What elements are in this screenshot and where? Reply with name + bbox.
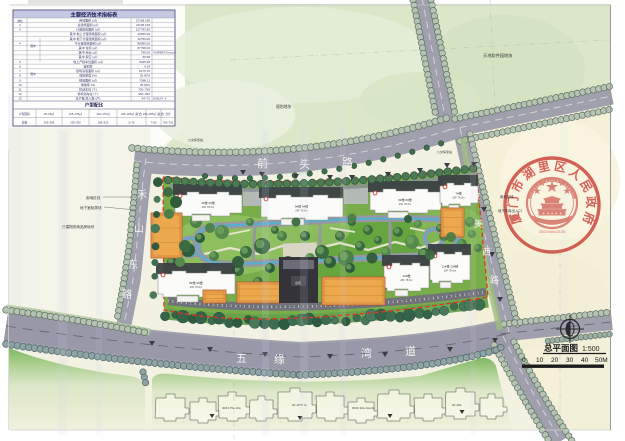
svg-text:湾: 湾: [361, 346, 372, 360]
svg-text:750~752: 750~752: [163, 121, 174, 125]
svg-text:12: 12: [18, 92, 22, 96]
svg-text:0: 0: [522, 357, 526, 364]
svg-text:6045.98: 6045.98: [139, 60, 150, 64]
svg-text:西: 西: [482, 247, 491, 257]
svg-text:27168.198: 27168.198: [136, 18, 151, 22]
svg-text:798.00: 798.00: [141, 51, 151, 55]
svg-text:5#楼 6#楼: 5#楼 6#楼: [398, 197, 412, 202]
svg-text:其中: 其中: [30, 72, 36, 76]
svg-text:25.00%: 25.00%: [140, 74, 151, 78]
svg-text:五: 五: [236, 353, 247, 365]
svg-text:禾: 禾: [137, 189, 147, 201]
svg-text:195~205㎡ (复式): 195~205㎡ (复式): [121, 112, 142, 116]
svg-text:10#楼: 10#楼: [402, 273, 410, 278]
svg-text:750~756: 750~756: [138, 87, 150, 91]
svg-text:35.00%: 35.00%: [140, 83, 151, 87]
svg-text:21105.198: 21105.198: [136, 23, 150, 27]
svg-text:185~515: 185~515: [98, 121, 109, 125]
svg-text:合计: 合计: [165, 112, 171, 116]
svg-text:计容建筑面积 (㎡): 计容建筑面积 (㎡): [76, 27, 100, 32]
svg-text:其中 架空 (㎡): 其中 架空 (㎡): [79, 54, 98, 59]
svg-text:4.19: 4.19: [144, 64, 150, 68]
svg-text:公交停靠站: 公交停靠站: [188, 137, 203, 142]
svg-text:11#楼 12#楼: 11#楼 12#楼: [442, 264, 459, 269]
svg-text:9F20 20a 10a 9a: 9F20 20a 10a 9a: [352, 406, 375, 410]
svg-text:9F43.75a 10a: 9F43.75a 10a: [222, 406, 241, 410]
svg-text:户型面积: 户型面积: [19, 112, 30, 116]
svg-text:机动车位 (个): 机动车位 (个): [79, 86, 97, 91]
svg-text:其中: 其中: [30, 44, 36, 48]
svg-text:户型配比: 户型配比: [84, 102, 104, 109]
svg-text:87798.00: 87798.00: [137, 46, 150, 50]
svg-text:规划地块: 规划地块: [276, 104, 291, 109]
svg-text:地上产权车位面积 (㎡): 地上产权车位面积 (㎡): [73, 59, 103, 64]
svg-text:88085.00: 88085.00: [137, 41, 150, 45]
svg-text:其中 商业 (㎡): 其中 商业 (㎡): [79, 50, 98, 55]
svg-text:1:500: 1:500: [582, 346, 600, 353]
svg-text:用地面积 (㎡): 用地面积 (㎡): [79, 17, 97, 22]
svg-text:26F 78.6m: 26F 78.6m: [399, 202, 411, 206]
svg-text:建筑密度 (%): 建筑密度 (%): [79, 73, 97, 78]
svg-text:36.98: 36.98: [142, 55, 150, 59]
svg-text:350206002135: 350206002135: [539, 229, 566, 234]
svg-text:绿地率 (%): 绿地率 (%): [81, 82, 96, 87]
svg-text:335~350: 335~350: [70, 121, 81, 125]
svg-text:总建筑面积 (㎡): 总建筑面积 (㎡): [78, 22, 99, 27]
svg-text:125~135㎡: 125~135㎡: [69, 112, 83, 116]
svg-text:11: 11: [18, 87, 21, 91]
svg-text:7#楼: 7#楼: [455, 191, 461, 196]
svg-text:127793.80: 127793.80: [136, 28, 151, 32]
svg-text:7588.11: 7588.11: [139, 78, 150, 82]
svg-text:山: 山: [134, 223, 144, 235]
svg-text:容积率: 容积率: [83, 63, 92, 68]
svg-text:20: 20: [551, 357, 559, 364]
svg-text:地下车库出入口: 地下车库出入口: [498, 208, 522, 213]
svg-text:140~175㎡: 140~175㎡: [96, 112, 110, 116]
svg-text:42750.00: 42750.00: [137, 37, 150, 41]
svg-text:26F 78.6m: 26F 78.6m: [202, 205, 214, 209]
svg-text:26F 78.6m: 26F 78.6m: [452, 195, 464, 199]
svg-text:265~295: 265~295: [44, 121, 55, 125]
svg-text:绿地面积 (㎡): 绿地面积 (㎡): [79, 77, 97, 82]
svg-text:26F 78.6m: 26F 78.6m: [190, 285, 202, 289]
svg-text:套数: 套数: [22, 121, 28, 125]
svg-text:50M: 50M: [595, 357, 608, 364]
svg-text:245~255㎡ (复式): 245~255㎡ (复式): [143, 112, 164, 116]
svg-text:不计容建筑面积 (㎡): 不计容建筑面积 (㎡): [75, 40, 102, 45]
svg-text:9F 20a: 9F 20a: [452, 403, 462, 407]
svg-text:900~960: 900~960: [138, 92, 150, 96]
svg-text:7~50: 7~50: [150, 121, 157, 125]
svg-text:1#楼 2#楼: 1#楼 2#楼: [201, 200, 215, 205]
svg-text:10: 10: [536, 357, 544, 364]
svg-text:东: 东: [128, 258, 138, 271]
svg-text:总平面图: 总平面图: [544, 343, 578, 353]
svg-text:公交停靠站: 公交停靠站: [437, 149, 452, 154]
svg-text:其中 地上计容建筑面积 (㎡): 其中 地上计容建筑面积 (㎡): [70, 31, 107, 36]
svg-text:40: 40: [581, 357, 589, 364]
svg-text:天地软件园地块: 天地软件园地块: [483, 52, 513, 59]
svg-text:26F 78.6m: 26F 78.6m: [444, 268, 456, 272]
svg-text:5~75: 5~75: [128, 121, 135, 125]
svg-text:总户数/总人数 (户): 总户数/总人数 (户): [76, 96, 101, 101]
svg-text:建筑基底面积 (㎡): 建筑基底面积 (㎡): [76, 68, 100, 73]
svg-text:8#楼 9#楼: 8#楼 9#楼: [189, 280, 203, 285]
svg-text:40000.00: 40000.00: [137, 32, 150, 36]
svg-text:64~75: 64~75: [142, 97, 151, 101]
svg-text:35~55㎡: 35~55㎡: [44, 112, 55, 116]
svg-text:路: 路: [122, 288, 132, 301]
svg-text:13: 13: [18, 97, 22, 101]
svg-text:用地红线: 用地红线: [500, 194, 514, 199]
svg-text:缘: 缘: [274, 353, 285, 366]
svg-text:政: 政: [583, 196, 598, 209]
svg-text:路: 路: [490, 274, 499, 285]
svg-text:5175.70: 5175.70: [139, 69, 150, 73]
svg-text:其中 住宅 (㎡): 其中 住宅 (㎡): [79, 45, 98, 50]
svg-text:道: 道: [405, 344, 416, 358]
svg-text:30: 30: [566, 357, 574, 364]
svg-text:其中 地下计容建筑面积 (㎡): 其中 地下计容建筑面积 (㎡): [70, 36, 107, 41]
svg-text:非机动车位 (个): 非机动车位 (个): [78, 91, 99, 96]
svg-text:主要经济技术指标表: 主要经济技术指标表: [71, 11, 119, 19]
svg-text:序号: 序号: [17, 20, 23, 24]
svg-text:10: 10: [18, 83, 22, 87]
svg-text:26F 78.6m: 26F 78.6m: [400, 278, 412, 282]
